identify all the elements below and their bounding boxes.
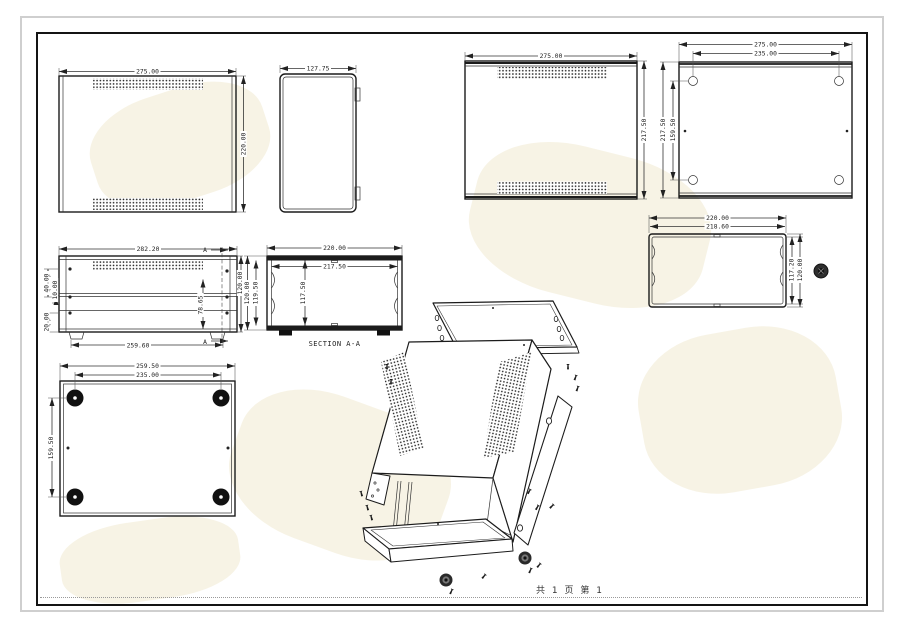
section-label: SECTION A-A <box>309 340 361 348</box>
dim-bottom-width: 259.60 <box>127 343 150 350</box>
dim-height: 220.00 <box>241 132 248 155</box>
dim-height: 217.50 <box>660 118 667 141</box>
dim-inner-height: 117.20 <box>789 258 796 281</box>
dim-height: 120.00 <box>237 271 244 294</box>
dim-hole-width: 235.00 <box>754 51 777 58</box>
dim-width: 275.00 <box>754 42 777 49</box>
dim-40: 40.00 <box>44 273 51 292</box>
dim-hole-height: 159.50 <box>670 118 677 141</box>
dim-feet-height: 159.50 <box>48 436 55 459</box>
view-bottom-feet: 259.50 235.00 159.50 <box>48 363 235 516</box>
dim-inner-width: 217.50 <box>323 264 346 271</box>
dim-inner-height-left: 119.50 <box>253 281 260 304</box>
dim-width: 259.50 <box>136 363 159 370</box>
dim-width: 220.00 <box>323 245 346 252</box>
dim-width: 275.00 <box>136 69 159 76</box>
view-side-panel: 127.75 <box>280 65 360 212</box>
section-mark-top: A <box>203 247 207 254</box>
rubber-foot <box>519 552 532 565</box>
engineering-drawing: 275.00 220.00 127.75 <box>0 0 900 636</box>
dim-top-width: 282.20 <box>137 246 160 253</box>
dim-78: 78.65 <box>198 295 205 314</box>
dim-width: 127.75 <box>307 66 330 73</box>
view-front: A A 282.20 259.60 120.00 40.00 <box>43 246 244 350</box>
dim-height: 217.50 <box>641 118 648 141</box>
dim-inner-height: 117.50 <box>300 281 307 304</box>
dim-10: 10.00 <box>52 280 59 299</box>
view-inner-top-panel: 275.00 217.50 <box>465 52 648 199</box>
dim-width: 220.00 <box>706 215 729 222</box>
dim-feet-width: 235.00 <box>136 372 159 379</box>
view-top-panel: 275.00 220.00 <box>59 68 248 212</box>
dim-inner-width: 218.60 <box>706 224 729 231</box>
dim-outer-height: 120.00 <box>244 281 251 304</box>
rubber-foot-knob <box>814 264 828 278</box>
view-section-aa: 220.00 217.50 117.50 120.00 119.50 SECTI… <box>244 245 402 348</box>
dim-width: 275.00 <box>540 53 563 60</box>
drawing-sheet: 共 1 页 第 1 <box>0 0 900 636</box>
rubber-foot <box>440 574 453 587</box>
view-base-plate: 275.00 235.00 217.50 159.50 <box>660 41 852 198</box>
view-exploded-assembly <box>359 301 580 595</box>
dim-height: 120.00 <box>797 258 804 281</box>
dim-20: 20.00 <box>44 312 51 331</box>
view-rear-cover: 220.00 218.60 117.20 120.00 <box>649 215 828 307</box>
